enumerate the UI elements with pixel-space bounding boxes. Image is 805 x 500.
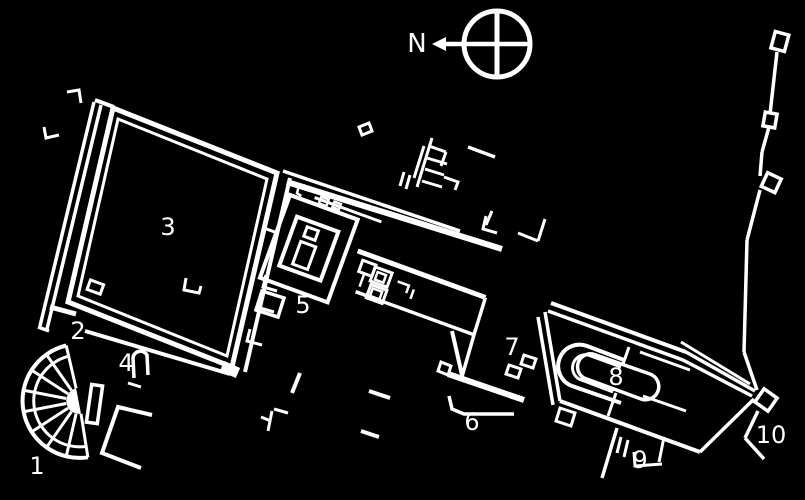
theater-stage-bar [86,384,102,423]
theater [23,346,88,458]
wall-tower [761,173,781,193]
label-5: 5 [295,291,310,319]
forum-square [68,108,290,372]
label-4: 4 [118,349,133,377]
wall-tower [771,31,789,51]
west-street-walls [38,100,238,374]
label-8: 8 [608,363,623,391]
wall-tower [763,112,777,128]
east-corridor-rooms [330,251,491,376]
room-southwest [102,407,152,468]
theater-orchestra [66,388,81,414]
north-arrowhead [432,37,446,51]
label-6: 6 [464,408,479,436]
label-9: 9 [632,446,647,474]
forum-door [87,280,104,294]
wall-tower [755,389,777,411]
site-plan-canvas: N 1 2 3 4 5 6 7 8 9 10 [0,0,805,500]
label-10: 10 [756,421,787,449]
label-3: 3 [160,213,175,241]
label-1: 1 [29,452,44,480]
north-fragments [359,123,545,241]
north-label: N [407,29,426,59]
south-fragments [261,373,390,437]
nw-fragments [44,90,81,138]
label-7: 7 [504,333,519,361]
compass-rose [432,9,530,79]
site-plan: N 1 2 3 4 5 6 7 8 9 10 [0,0,805,500]
bath-complex [538,303,755,452]
label-2: 2 [70,317,85,345]
